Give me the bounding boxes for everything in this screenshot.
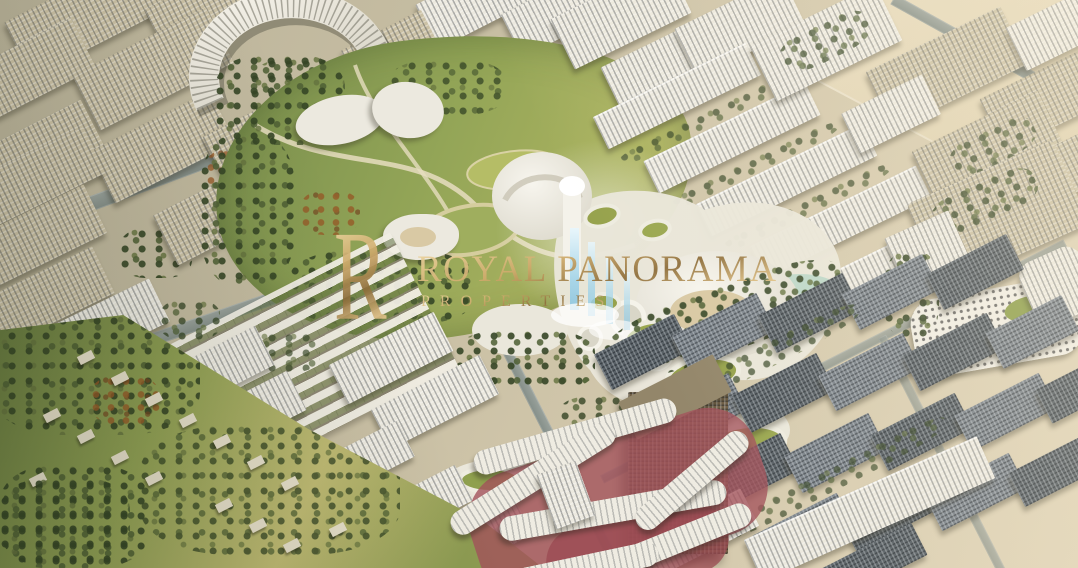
city-block: [1008, 435, 1078, 507]
park-trees: [200, 135, 295, 285]
tower-cap: [559, 176, 585, 196]
corner-trees: [0, 478, 130, 568]
watermark-brand-subtitle: PROPERTIES: [421, 293, 614, 311]
watermark-monogram: R: [334, 224, 387, 329]
aerial-masterplan-render: R ROYAL PANORAMA PROPERTIES: [0, 0, 1078, 568]
tree-cluster: [160, 300, 220, 340]
watermark-brand-name: ROYAL PANORAMA: [417, 248, 778, 291]
villa: [111, 450, 129, 465]
